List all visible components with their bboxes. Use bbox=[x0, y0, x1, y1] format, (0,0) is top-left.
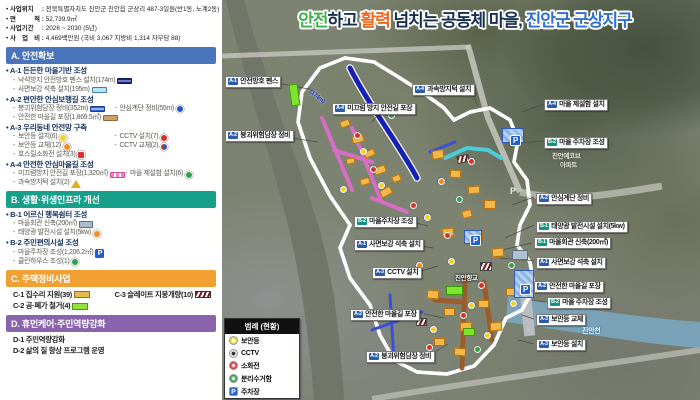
project-info-item: 면 적 : 52,739.9㎡ bbox=[6, 15, 216, 25]
work-item-label: CCTV 설치(7) bbox=[120, 133, 159, 142]
work-item: C-3 슬레이트 지붕개량(10) bbox=[115, 289, 217, 301]
callout-badge: A-2 bbox=[228, 132, 239, 139]
work-item-label: 미끄럼방지 안전길 포장(1,320㎡) bbox=[18, 170, 108, 179]
parking-p-icon: P bbox=[510, 135, 521, 146]
project-info-item: 사업기간 : 2026 ~ 2030 (5년) bbox=[6, 24, 216, 34]
house-repair-building bbox=[450, 170, 462, 179]
cctv-icon bbox=[468, 158, 475, 165]
work-item: 미끄럼방지 안전길 포장(1,320㎡) bbox=[13, 170, 125, 179]
cctv-icon bbox=[410, 202, 417, 209]
hydrant-icon bbox=[229, 361, 238, 370]
callout-badge: A-4 bbox=[547, 101, 558, 108]
work-item-label: CCTV 교체(2) bbox=[120, 142, 159, 151]
map-callout: B-1태양광 발전시설 설치(5kw) bbox=[536, 221, 628, 233]
stone-bar-icon bbox=[92, 87, 107, 93]
anti-slip-paving bbox=[322, 118, 407, 212]
callout-text: 안전방호 펜스 bbox=[240, 78, 278, 87]
callout-badge: A-2 bbox=[537, 283, 548, 290]
legend-item: P주차장 bbox=[225, 385, 299, 398]
cctv-icon bbox=[444, 232, 451, 239]
work-item: 보안등 교체(12) bbox=[13, 142, 115, 151]
work-item: D-2 삶의 질 향상 프로그램 운영 bbox=[13, 345, 216, 357]
info-label: 사업기간 bbox=[10, 24, 40, 34]
page-title: 안전하고 활력 넘치는 공동체 마을, 진안군 군상지구 bbox=[234, 6, 696, 31]
work-item: 호스릴소화전 설치(3) bbox=[13, 151, 216, 160]
c2-icon bbox=[72, 303, 88, 310]
parking-p-icon: P bbox=[520, 284, 531, 295]
retaining-wall-line bbox=[445, 148, 501, 158]
work-item-label: C-3 슬레이트 지붕개량(10) bbox=[115, 290, 193, 300]
work-item-label: 과속방지턱 설치(2) bbox=[18, 179, 69, 188]
callout-badge: A-1 bbox=[539, 259, 550, 266]
work-row: 붕괴위험담장 정비(352m)안심계단 정비(55m) bbox=[6, 105, 216, 114]
legend-label: 주차장 bbox=[241, 387, 259, 397]
house-repair-building bbox=[492, 247, 505, 257]
callout-text: 사면보강 석축 설치 bbox=[369, 241, 420, 250]
work-item: 사면보강 석축 설치(195m) bbox=[13, 86, 216, 95]
map-callout: A-2안전한 마을길 포장 bbox=[350, 309, 420, 321]
house-repair-building bbox=[490, 321, 503, 331]
legend-label: 보안등 bbox=[241, 336, 259, 346]
callout-text: 안전한 마을길 포장 bbox=[365, 311, 416, 320]
work-row: 낙석방지 안전방호 펜스 설치(174m) bbox=[6, 77, 216, 86]
house-repair-building bbox=[468, 185, 481, 194]
cctv-icon bbox=[460, 312, 467, 319]
work-item-label: 낙석방지 안전방호 펜스 설치(174m) bbox=[18, 77, 115, 86]
cctv-icon bbox=[354, 132, 361, 139]
map-callout: A-1안전방호 펜스 bbox=[225, 76, 281, 88]
callout-badge: B-1 bbox=[537, 239, 548, 246]
work-row: D-2 삶의 질 향상 프로그램 운영 bbox=[6, 345, 216, 357]
house-repair-building bbox=[434, 338, 445, 346]
work-item-label: C-2 공·폐가 철거(4) bbox=[13, 301, 70, 311]
village-hall-building bbox=[512, 250, 528, 260]
callout-text: 안전한 마을길 포장 bbox=[549, 283, 600, 292]
map-callout: B-2마을 주차장 조성 bbox=[544, 137, 608, 149]
c1-icon bbox=[74, 291, 90, 298]
work-item-label: 안심계단 정비(55m) bbox=[120, 105, 174, 114]
stair-icon bbox=[176, 105, 184, 113]
section-header-b: B. 생활·위생인프라 개선 bbox=[6, 191, 216, 208]
map-callout: A-2붕괴위험담장 정비 bbox=[225, 130, 294, 142]
callout-badge: A-3 bbox=[539, 341, 550, 348]
demolition-building bbox=[463, 328, 475, 336]
plan-board: 사업위치 : 전북특별자치도 진안군 진안읍 군상리 487-3일원(반1동, … bbox=[0, 0, 700, 400]
callout-text: 마을회관 신축(200㎡) bbox=[549, 239, 608, 248]
fence-bar-icon bbox=[117, 78, 132, 84]
work-item-label: 태양광 발전시설 설치(5kw) bbox=[18, 229, 91, 238]
map-callout: B-1마을회관 신축(200㎡) bbox=[534, 237, 611, 249]
work-item-label: 안전한 마을길 포장(1,869.5㎡) bbox=[18, 114, 101, 123]
map-callout: B-2마을주차장 조성 bbox=[354, 216, 417, 228]
callout-text: CCTV 설치 bbox=[387, 269, 418, 278]
callout-badge: A-2 bbox=[539, 195, 550, 202]
house-repair-building bbox=[454, 347, 467, 356]
security-light-icon bbox=[430, 326, 437, 333]
work-row: 과속방지턱 설치(2) bbox=[6, 179, 216, 188]
aerial-map: 안전하고 활력 넘치는 공동체 마을, 진안군 군상지구 PPP A-1안전방호… bbox=[222, 0, 700, 400]
work-item: C-1 집수리 지원(39) bbox=[13, 289, 115, 301]
work-row: C-1 집수리 지원(39)C-3 슬레이트 지붕개량(10) bbox=[6, 289, 216, 301]
demolition-building bbox=[446, 286, 463, 295]
map-bg-text: 진안향교 bbox=[455, 272, 478, 282]
section-b: B. 생활·위생인프라 개선B-1 어르신 행복쉼터 조성마을회관 신축(200… bbox=[6, 191, 216, 266]
work-row: 태양광 발전시설 설치(5kw) bbox=[6, 229, 216, 238]
info-value: 2026 ~ 2030 (5년) bbox=[46, 25, 97, 32]
callout-text: 보안등 설치 bbox=[551, 341, 583, 350]
callout-badge: A-4 bbox=[415, 86, 426, 93]
parking-icon: P bbox=[229, 387, 238, 396]
hydrant-icon bbox=[77, 151, 85, 159]
recycle-bin-icon bbox=[474, 346, 481, 353]
title-segment: 진안군 군상지구 bbox=[526, 11, 632, 30]
work-item: 클린하우스 조성(1) bbox=[13, 258, 216, 267]
legend-label: 분리수거함 bbox=[241, 374, 272, 384]
work-item-label: 마을주차장 조성(1,206.2㎡) bbox=[18, 249, 93, 258]
roof-improvement-building bbox=[480, 262, 492, 271]
security-light-icon bbox=[448, 258, 455, 265]
house-repair-building bbox=[427, 289, 440, 299]
callout-text: 보안등 교체 bbox=[551, 316, 583, 325]
light-new-icon bbox=[59, 134, 67, 142]
section-c: C. 주택정비사업C-1 집수리 지원(39)C-3 슬레이트 지붕개량(10)… bbox=[6, 270, 216, 312]
parking-icon: P bbox=[95, 249, 104, 258]
work-item: 보안등 설치(6) bbox=[13, 133, 115, 142]
callout-badge: A-3 bbox=[375, 269, 386, 276]
project-summary: 사업위치 : 전북특별자치도 진안군 진안읍 군상리 487-3일원(반1동, … bbox=[6, 5, 216, 43]
info-label: 사업위치 bbox=[10, 5, 40, 15]
info-label: 면 적 bbox=[10, 15, 40, 25]
map-callout: A-2안심계단 정비 bbox=[536, 193, 592, 205]
work-sections: A. 안전확보A-1 든든한 마을기반 조성낙석방지 안전방호 펜스 설치(17… bbox=[6, 47, 216, 357]
info-value: 전북특별자치도 진안군 진안읍 군상리 487-3일원(반1동, 노계2동) bbox=[46, 6, 220, 13]
map-bg-text: 진안천 bbox=[582, 326, 600, 336]
work-row: 클린하우스 조성(1) bbox=[6, 258, 216, 267]
house-repair-building bbox=[444, 308, 455, 316]
group-title: A-3 우리동네 안전망 구축 bbox=[6, 123, 216, 133]
cctv-replace-icon bbox=[160, 143, 168, 151]
wall-bar-icon bbox=[90, 106, 105, 112]
map-callout: A-4미끄럼 방지 안전길 포장 bbox=[332, 103, 416, 115]
security-light-icon bbox=[340, 186, 347, 193]
cctv-icon bbox=[478, 282, 485, 289]
callout-text: 마을주차장 조성 bbox=[369, 218, 413, 227]
map-callout: A-2붕괴위험담장 정비 bbox=[366, 351, 435, 363]
work-item: 안전한 마을길 포장(1,869.5㎡) bbox=[13, 114, 216, 123]
callout-badge: A-1 bbox=[357, 241, 368, 248]
group-title: B-1 어르신 행복쉼터 조성 bbox=[6, 210, 216, 220]
work-item-label: 보안등 설치(6) bbox=[18, 133, 57, 142]
work-item-label: C-1 집수리 지원(39) bbox=[13, 290, 72, 300]
callout-text: 태양광 발전시설 설치(5kw) bbox=[551, 223, 624, 232]
work-item: CCTV 설치(7) bbox=[115, 133, 217, 142]
info-label: 사 업 비 bbox=[10, 34, 40, 44]
security-light-icon bbox=[229, 336, 238, 345]
security-light-icon bbox=[378, 182, 385, 189]
title-segment: 하고 bbox=[328, 11, 361, 30]
callout-badge: A-3 bbox=[539, 316, 550, 323]
security-light-icon bbox=[360, 148, 367, 155]
legend-item: CCTV bbox=[225, 347, 299, 359]
cctv-icon bbox=[426, 344, 433, 351]
map-callout: A-1사면보강 석축 설치 bbox=[536, 257, 606, 269]
section-header-c: C. 주택정비사업 bbox=[6, 270, 216, 287]
callout-badge: A-4 bbox=[335, 105, 346, 112]
callout-text: 마을 제설함 설치 bbox=[559, 101, 604, 110]
security-light-icon bbox=[468, 302, 475, 309]
work-item: C-2 공·폐가 철거(4) bbox=[13, 300, 216, 312]
cctv-new-icon bbox=[160, 134, 168, 142]
recycle-bin-icon bbox=[229, 374, 238, 383]
cleanhouse-icon bbox=[71, 258, 79, 266]
work-item: 태양광 발전시설 설치(5kw) bbox=[13, 229, 216, 238]
callout-text: 사면보강 석축 설치 bbox=[551, 259, 602, 268]
map-callout: B-2마을 주차장 조성 bbox=[547, 297, 611, 309]
work-item-label: 사면보강 석축 설치(195m) bbox=[18, 86, 90, 95]
work-row: 사면보강 석축 설치(195m) bbox=[6, 86, 216, 95]
work-row: 마을주차장 조성(1,206.2㎡)P bbox=[6, 249, 216, 258]
callout-badge: B-2 bbox=[550, 299, 561, 306]
callout-badge: A-1 bbox=[228, 78, 239, 85]
legend-item: 보안등 bbox=[225, 334, 299, 347]
info-value: 4,469백만원 (국비 3,067 지방비 1,314 자부담 88) bbox=[46, 35, 181, 42]
map-callout: A-4마을 제설함 설치 bbox=[544, 99, 608, 111]
callout-text: 마을 주차장 조성 bbox=[559, 139, 604, 148]
legend-label: CCTV bbox=[241, 350, 259, 357]
section-header-a: A. 안전확보 bbox=[6, 47, 216, 64]
callout-badge: B-2 bbox=[357, 218, 368, 225]
map-bg-text: 아파트 bbox=[560, 159, 577, 169]
hall-icon bbox=[79, 221, 93, 228]
callout-text: 미끄럼 방지 안전길 포장 bbox=[347, 105, 412, 114]
house-repair-building bbox=[478, 300, 489, 308]
project-info-item: 사 업 비 : 4,469백만원 (국비 3,067 지방비 1,314 자부담… bbox=[6, 34, 216, 44]
title-segment: 넘치는 공동체 마을, bbox=[390, 11, 526, 30]
callout-text: 마을 주차장 조성 bbox=[562, 299, 607, 308]
work-item-label: 호스릴소화전 설치(3) bbox=[18, 151, 75, 160]
section-a: A. 안전확보A-1 든든한 마을기반 조성낙석방지 안전방호 펜스 설치(17… bbox=[6, 47, 216, 188]
work-item: 마을 제설함 설치(6) bbox=[125, 170, 216, 179]
cctv-icon bbox=[229, 349, 238, 358]
solar-icon bbox=[438, 178, 445, 185]
work-item: 붕괴위험담장 정비(352m) bbox=[13, 105, 115, 114]
c3-icon bbox=[195, 291, 211, 298]
info-value: 52,739.9㎡ bbox=[46, 16, 77, 23]
section-header-d: D. 휴먼케어·주민역량강화 bbox=[6, 315, 216, 332]
solar-icon bbox=[93, 230, 101, 238]
light-replace-icon bbox=[63, 143, 71, 151]
group-title: A-2 편안한 안심보행길 조성 bbox=[6, 95, 216, 105]
security-light-icon bbox=[424, 214, 431, 221]
callout-badge: A-2 bbox=[369, 353, 380, 360]
work-row: 호스릴소화전 설치(3) bbox=[6, 151, 216, 160]
work-row: 안전한 마을길 포장(1,869.5㎡) bbox=[6, 114, 216, 123]
map-callout: A-1사면보강 석축 설치 bbox=[354, 239, 424, 251]
snowbox-icon bbox=[185, 171, 193, 179]
map-callout: A-2안전한 마을길 포장 bbox=[534, 281, 604, 293]
work-item: 과속방지턱 설치(2) bbox=[13, 179, 216, 188]
work-row: 보안등 설치(6)CCTV 설치(7) bbox=[6, 133, 216, 142]
work-item-label: 보안등 교체(12) bbox=[18, 142, 61, 151]
legend-title: 범례 (현황) bbox=[225, 319, 299, 334]
map-callout: A-3보안등 교체 bbox=[536, 314, 586, 326]
legend-item: 소화전 bbox=[225, 359, 299, 372]
group-title: A-4 안전한 안심마을길 조성 bbox=[6, 160, 216, 170]
work-item: D-1 주민역량강화 bbox=[13, 334, 216, 346]
work-item: 마을주차장 조성(1,206.2㎡)P bbox=[13, 249, 216, 258]
pave-bar-icon bbox=[103, 115, 118, 121]
security-light-icon bbox=[484, 332, 491, 339]
map-bg-text: P bbox=[510, 186, 516, 196]
work-item-label: 클린하우스 조성(1) bbox=[18, 258, 69, 267]
section-d: D. 휴먼케어·주민역량강화D-1 주민역량강화D-2 삶의 질 향상 프로그램… bbox=[6, 315, 216, 357]
security-light-icon bbox=[510, 300, 517, 307]
work-item: 안심계단 정비(55m) bbox=[115, 105, 217, 114]
recycle-bin-icon bbox=[508, 262, 515, 269]
work-item-label: 붕괴위험담장 정비(352m) bbox=[18, 105, 88, 114]
legend-label: 소화전 bbox=[241, 361, 259, 371]
slip-bar-icon bbox=[110, 172, 125, 178]
callout-text: 붕괴위험담장 정비 bbox=[240, 132, 290, 141]
map-callout: A-3CCTV 설치 bbox=[372, 267, 422, 279]
project-info-item: 사업위치 : 전북특별자치도 진안군 진안읍 군상리 487-3일원(반1동, … bbox=[6, 5, 216, 15]
work-item-label: D-2 삶의 질 향상 프로그램 운영 bbox=[13, 346, 104, 356]
map-legend: 범례 (현황) 보안등CCTV소화전분리수거함P주차장 bbox=[224, 318, 300, 399]
parking-p-icon: P bbox=[470, 235, 481, 246]
title-segment: 활력 bbox=[361, 11, 390, 30]
callout-badge: B-1 bbox=[539, 223, 550, 230]
map-callout: A-3보안등 설치 bbox=[536, 339, 586, 351]
callout-text: 과속방지턱 설치 bbox=[427, 86, 471, 95]
work-row: 보안등 교체(12)CCTV 교체(2) bbox=[6, 142, 216, 151]
work-row: 미끄럼방지 안전길 포장(1,320㎡)마을 제설함 설치(6) bbox=[6, 170, 216, 179]
project-info-panel: 사업위치 : 전북특별자치도 진안군 진안읍 군상리 487-3일원(반1동, … bbox=[0, 0, 222, 400]
house-repair-building bbox=[484, 200, 496, 209]
callout-badge: B-2 bbox=[547, 139, 558, 146]
cctv-icon bbox=[370, 166, 377, 173]
map-callout: A-4과속방지턱 설치 bbox=[412, 84, 475, 96]
callout-text: 안심계단 정비 bbox=[551, 195, 589, 204]
recycle-bin-icon bbox=[456, 196, 463, 203]
work-row: C-2 공·폐가 철거(4) bbox=[6, 300, 216, 312]
work-item-label: D-1 주민역량강화 bbox=[13, 335, 65, 345]
title-segment: 안전 bbox=[298, 11, 327, 30]
work-item: CCTV 교체(2) bbox=[115, 142, 217, 151]
work-item: 낙석방지 안전방호 펜스 설치(174m) bbox=[13, 77, 216, 86]
work-row: D-1 주민역량강화 bbox=[6, 334, 216, 346]
callout-badge: A-2 bbox=[353, 311, 364, 318]
legend-item: 분리수거함 bbox=[225, 372, 299, 385]
speedbump-icon bbox=[71, 180, 81, 188]
group-title: B-2 주민편의시설 조성 bbox=[6, 238, 216, 248]
callout-text: 붕괴위험담장 정비 bbox=[381, 353, 431, 362]
work-item-label: 마을 제설함 설치(6) bbox=[130, 170, 183, 179]
group-title: A-1 든든한 마을기반 조성 bbox=[6, 66, 216, 76]
